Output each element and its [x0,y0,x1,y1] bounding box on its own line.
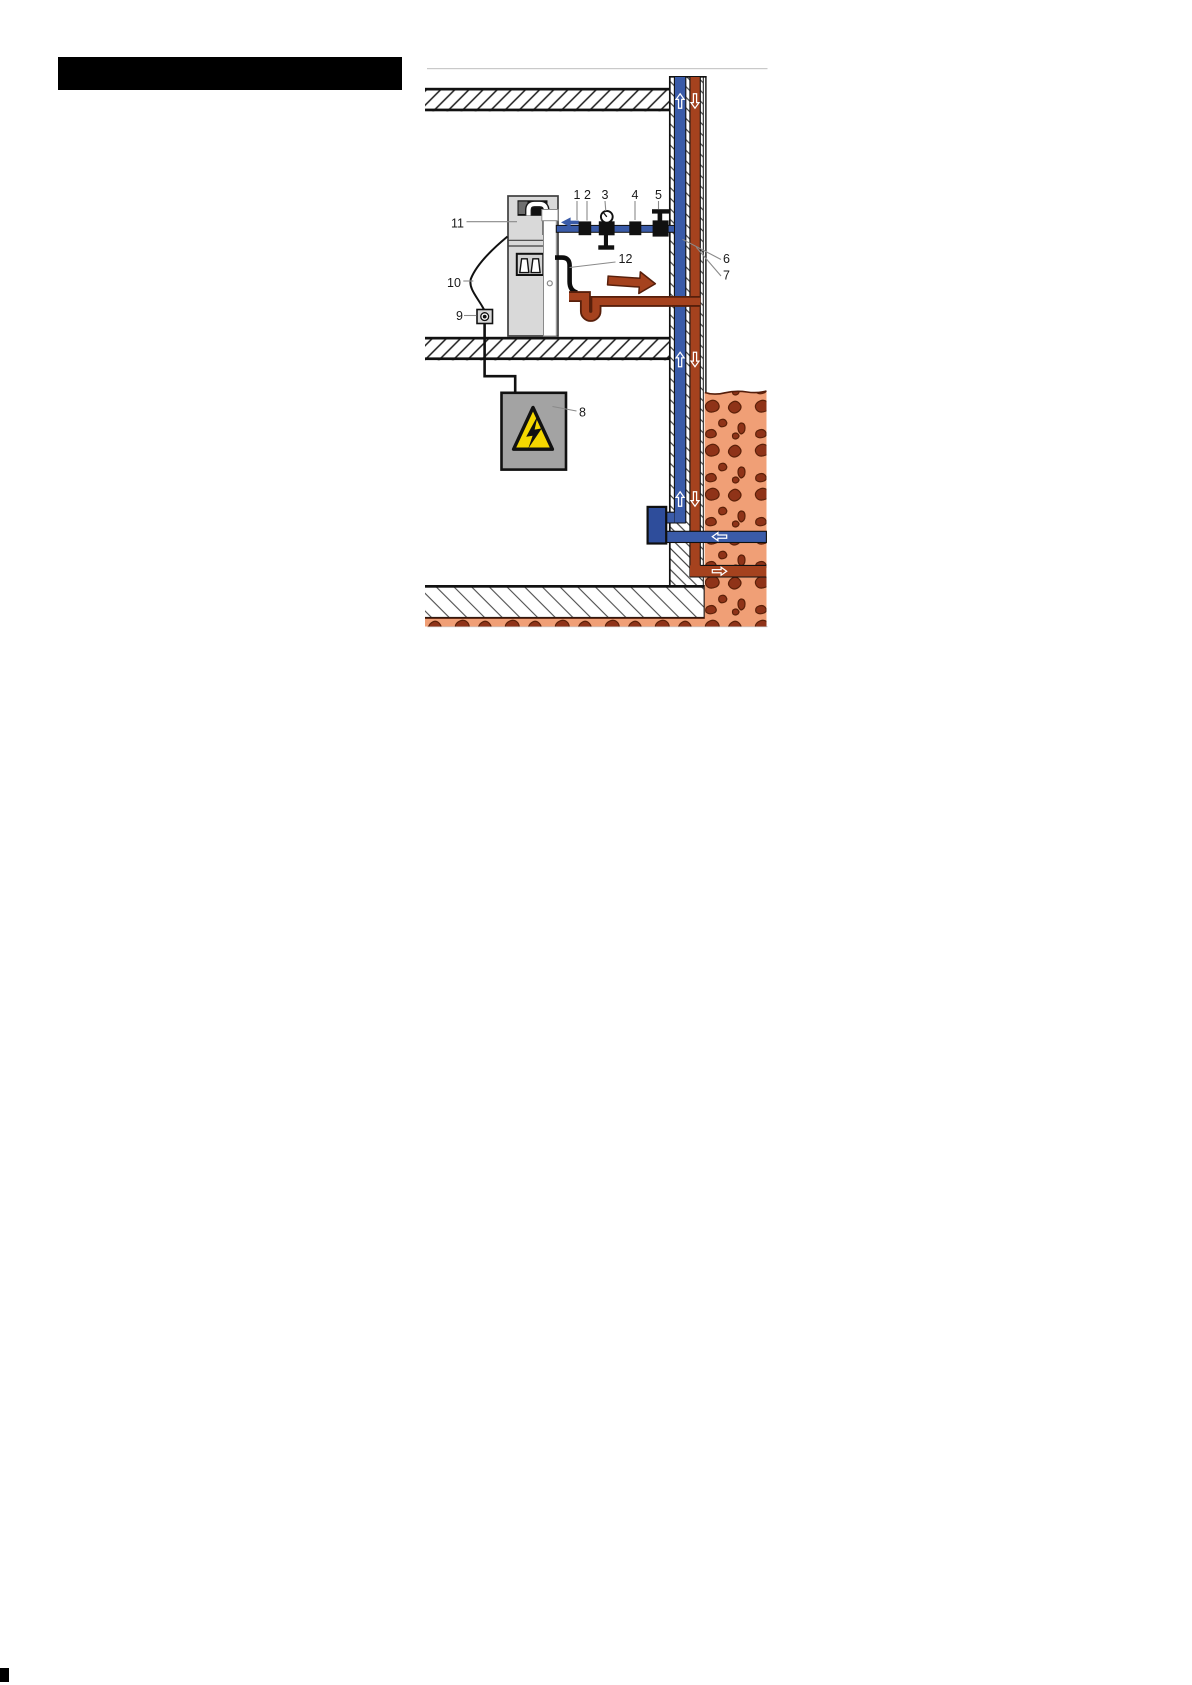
overflow-port [547,281,552,286]
callout-label: 7 [723,269,730,283]
riser-column [544,210,557,337]
supply-pipe [663,531,766,542]
power-cable [470,237,507,310]
callout-label: 11 [451,217,464,231]
foundation-slab [425,585,706,618]
water-softener [508,196,558,336]
callout-12: 12 [570,252,633,268]
callout-label: 2 [584,188,591,202]
callout-2: 2 [584,188,591,221]
page-corner-mark [0,1668,9,1682]
floor-slab [425,337,670,361]
sewer-outlet-pipe [690,565,766,577]
ceiling-slab [425,88,669,112]
inlet-pipe-assembly [556,209,674,250]
callout-5: 5 [655,188,662,209]
callout-label: 10 [447,276,461,290]
redacted-heading-bar [58,57,402,90]
callout-10: 10 [447,276,473,290]
manual-page: 1 2 3 4 5 6 7 [0,0,1192,1685]
pipe-fitting [629,221,641,235]
pipe-fitting [579,221,592,235]
installation-figure: 1 2 3 4 5 6 7 [425,68,768,627]
shutoff-valve [652,209,669,236]
riser-collar [542,210,558,221]
callout-9: 9 [456,309,476,323]
callout-label: 8 [579,406,586,420]
callout-1: 1 [574,188,581,220]
callout-label: 9 [456,309,463,323]
callout-label: 4 [632,188,639,202]
socket-pin [483,315,487,319]
callout-label: 5 [655,188,662,202]
figure-top-border [427,68,768,69]
salt-block [531,259,540,273]
pressure-gauge-fitting [598,211,614,250]
callout-label: 6 [723,252,730,266]
callout-4: 4 [632,188,639,220]
drain-flow-arrow-icon [607,270,656,295]
salt-block [520,259,529,273]
valve-handle [652,209,669,213]
callout-label: 1 [574,188,581,202]
callout-3: 3 [602,188,609,211]
callout-label: 12 [619,252,633,266]
callout-label: 3 [602,188,609,202]
main-shutoff-fitting [648,507,667,544]
callout-11: 11 [451,217,517,231]
